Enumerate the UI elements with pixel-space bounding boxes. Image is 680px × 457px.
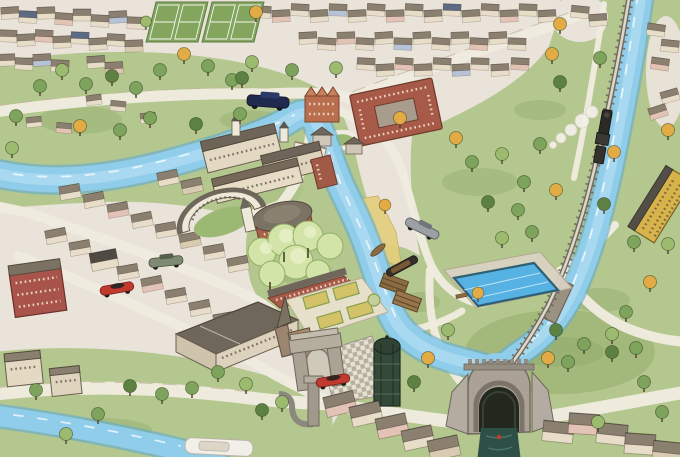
tunnel-mouth <box>479 387 519 432</box>
house <box>109 11 128 24</box>
house <box>432 37 451 50</box>
house <box>73 9 91 21</box>
house <box>19 11 38 24</box>
house <box>37 7 55 20</box>
house <box>660 39 679 53</box>
house <box>471 58 489 71</box>
house <box>500 10 518 23</box>
house <box>481 4 500 17</box>
tower-finial <box>385 335 389 339</box>
house <box>35 30 54 43</box>
house <box>272 10 291 23</box>
house <box>89 38 108 51</box>
tunnel-boat <box>497 435 501 439</box>
train-cab <box>595 132 610 145</box>
house <box>56 122 72 133</box>
house <box>424 10 443 23</box>
house <box>511 58 530 71</box>
house <box>470 38 489 51</box>
house <box>53 36 71 49</box>
house <box>462 9 481 22</box>
house <box>491 64 510 77</box>
house <box>125 40 143 53</box>
house <box>299 32 318 45</box>
house <box>443 4 461 17</box>
house <box>386 10 404 23</box>
house <box>318 37 337 50</box>
house <box>17 34 36 47</box>
house <box>337 32 355 45</box>
house <box>348 10 367 23</box>
house <box>519 4 537 17</box>
house <box>570 5 589 19</box>
house <box>367 3 386 16</box>
house <box>650 57 669 71</box>
house <box>0 30 17 43</box>
house <box>376 64 395 77</box>
house <box>329 4 347 17</box>
house <box>405 4 424 17</box>
house <box>71 32 89 45</box>
house <box>414 64 432 77</box>
house <box>646 23 665 37</box>
house <box>310 9 329 22</box>
house <box>451 32 469 45</box>
house <box>489 32 508 45</box>
house <box>110 100 126 112</box>
house <box>589 13 608 26</box>
house <box>86 94 103 106</box>
house <box>413 32 432 45</box>
house <box>375 31 394 44</box>
house <box>91 15 110 28</box>
house <box>0 54 15 67</box>
orange-gabled-house <box>305 87 339 122</box>
house <box>357 58 376 71</box>
house <box>1 6 20 19</box>
house <box>107 34 126 47</box>
house <box>26 116 42 128</box>
map-canvas <box>0 0 680 457</box>
house <box>652 440 680 457</box>
glass-tower <box>374 335 400 406</box>
house <box>394 38 412 51</box>
house <box>291 4 310 17</box>
tunnel-water <box>477 428 521 457</box>
house <box>356 38 375 51</box>
house <box>433 58 452 71</box>
illustrated-town-map <box>0 0 680 457</box>
house <box>538 10 557 23</box>
house <box>15 58 34 71</box>
brick-hotel <box>8 259 67 318</box>
house <box>33 54 52 67</box>
river-boat <box>185 437 254 457</box>
garden-circle-bed <box>368 294 380 306</box>
house <box>508 38 526 51</box>
house <box>395 57 414 70</box>
house <box>87 55 106 68</box>
house <box>624 433 656 455</box>
house <box>452 64 471 77</box>
house <box>55 12 74 25</box>
